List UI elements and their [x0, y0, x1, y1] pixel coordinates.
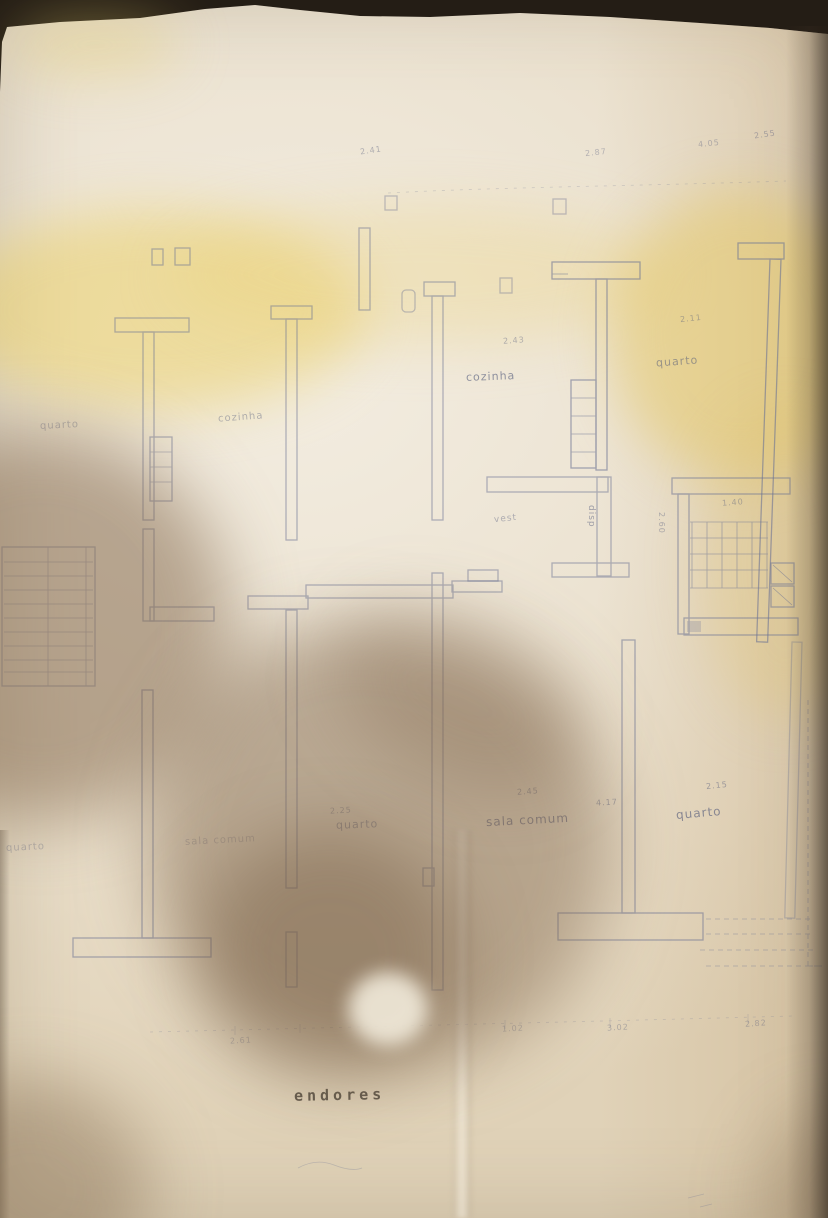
paper-crease [452, 830, 472, 1218]
page-curl-shadow [786, 26, 828, 1218]
photo-of-floor-plan: quartocozinhacozinhaquartovestdispsala c… [0, 0, 828, 1218]
paper-sheet [0, 0, 828, 1218]
left-edge-shadow [0, 830, 10, 1218]
plan-caption: endores [294, 1085, 386, 1105]
